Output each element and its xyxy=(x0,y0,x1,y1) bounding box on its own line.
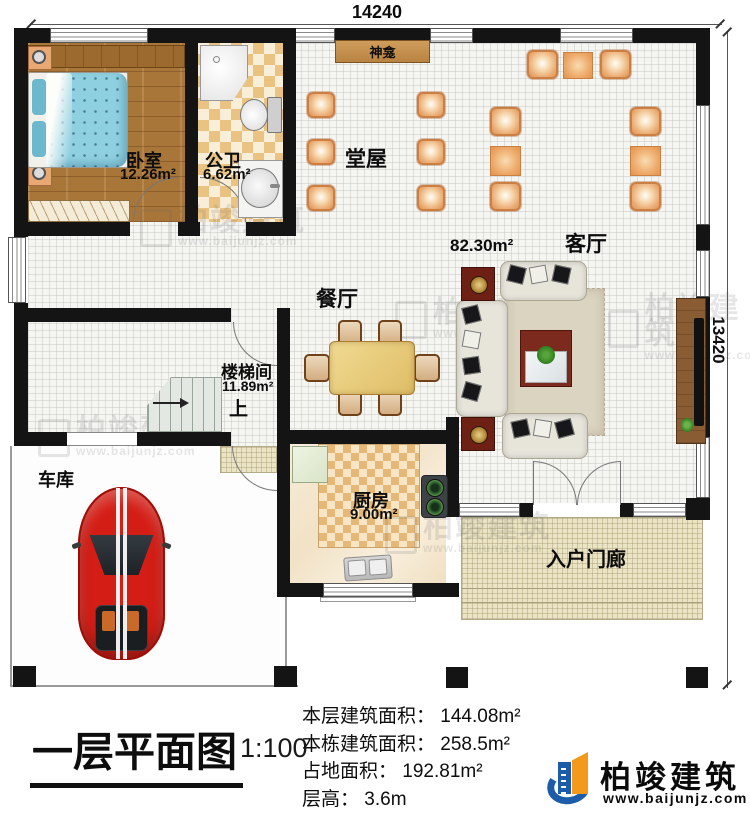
stairs-up-label: 上 xyxy=(229,394,248,421)
window-sill xyxy=(320,597,416,602)
title-block: 一层平面图 1:100 本层建筑面积： 144.08m² 本栋建筑面积： 258… xyxy=(0,700,750,817)
wall-opening xyxy=(67,432,137,446)
chair-icon xyxy=(600,50,631,79)
room-area-bathroom: 6.62m² xyxy=(203,166,251,183)
wall-segment xyxy=(686,498,710,520)
shrine-label: 神龛 xyxy=(369,42,395,61)
window-symbol xyxy=(696,105,710,225)
wall-segment xyxy=(14,303,28,446)
side-table-icon xyxy=(490,146,521,176)
dining-table xyxy=(329,341,415,395)
room-label-living: 客厅 xyxy=(565,228,607,258)
logo-building-blue-icon xyxy=(558,762,571,794)
stairs-direction-line xyxy=(153,402,181,404)
plan-info: 本层建筑面积： 144.08m² 本栋建筑面积： 258.5m² 占地面积： 1… xyxy=(302,703,521,813)
floorplan-canvas: 14240 13420 柏竣建筑 www.baijunjz.com 柏竣建筑 w… xyxy=(0,0,750,710)
car-engine-detail xyxy=(126,611,139,631)
window-symbol xyxy=(430,28,473,43)
info-line: 层高： 3.6m xyxy=(302,786,521,814)
lamp-icon xyxy=(32,166,46,180)
pillow xyxy=(31,78,47,116)
chair-icon xyxy=(307,139,335,165)
sofa-pillow xyxy=(529,265,549,285)
wall-segment xyxy=(14,28,28,237)
car xyxy=(78,487,165,660)
plant-icon xyxy=(537,346,555,364)
wall-segment xyxy=(696,28,710,105)
wall-segment xyxy=(14,222,130,236)
sofa-pillow xyxy=(462,330,482,350)
window-symbol xyxy=(633,503,686,517)
window-symbol xyxy=(8,237,26,303)
sink-basin-icon xyxy=(347,559,366,576)
wall-segment xyxy=(620,503,633,517)
room-area-stairwell: 11.89m² xyxy=(222,378,273,394)
dimension-line-top xyxy=(30,24,722,25)
plan-scale: 1:100 xyxy=(240,733,308,764)
wall-segment xyxy=(137,432,231,446)
lamp-icon xyxy=(32,50,46,64)
floorplan-page: { "plan": { "dim_top": "14240", "dim_rig… xyxy=(0,0,750,817)
door-leaf xyxy=(533,461,534,505)
chair-icon xyxy=(490,107,521,136)
porch-step-line xyxy=(461,588,703,589)
wall-segment xyxy=(413,583,459,597)
toilet-bowl xyxy=(240,99,268,131)
chair-icon xyxy=(630,182,661,211)
wardrobe xyxy=(28,200,130,222)
window-symbol xyxy=(560,28,633,43)
info-line: 本栋建筑面积： 258.5m² xyxy=(302,731,521,759)
door-leaf xyxy=(620,461,621,505)
shower-drain-icon xyxy=(213,56,220,63)
room-area-living: 82.30m² xyxy=(450,236,513,256)
side-table-icon xyxy=(630,146,661,176)
wall-segment xyxy=(277,446,290,597)
plan-title: 一层平面图 xyxy=(30,718,243,788)
wall-segment xyxy=(246,222,296,236)
burner-icon xyxy=(426,479,444,497)
chair-icon xyxy=(307,92,335,118)
wall-segment xyxy=(290,430,459,444)
wall-segment xyxy=(178,222,200,236)
tv-icon xyxy=(694,318,704,426)
logo-building-orange-icon xyxy=(572,752,588,794)
stairs-arrow-icon xyxy=(180,398,189,408)
room-area-bedroom: 12.26m² xyxy=(120,166,176,183)
window-symbol xyxy=(50,28,148,43)
garage-door-line xyxy=(10,685,298,687)
bed-sheet-fold xyxy=(46,73,72,167)
brand-website: www.baijunjz.com xyxy=(603,790,748,806)
chair-icon xyxy=(490,182,521,211)
room-label-dining: 餐厅 xyxy=(316,283,358,313)
sofa-pillow xyxy=(462,356,481,375)
sofa-pillow xyxy=(510,418,530,438)
window-symbol xyxy=(323,583,413,597)
wall-segment xyxy=(283,583,323,597)
toilet-tank xyxy=(267,97,282,133)
shrine-altar: 神龛 xyxy=(335,40,430,63)
column xyxy=(13,666,36,687)
room-label-hall: 堂屋 xyxy=(345,143,387,173)
wall-segment xyxy=(520,503,533,517)
dimension-line-right xyxy=(727,32,728,688)
info-line: 本层建筑面积： 144.08m² xyxy=(302,703,521,731)
chair-icon xyxy=(417,185,445,211)
brand-logo: 柏竣建筑 www.baijunjz.com xyxy=(545,750,745,812)
wall-segment xyxy=(277,308,290,446)
pillow xyxy=(31,120,47,158)
refrigerator xyxy=(292,446,328,483)
column xyxy=(446,667,468,688)
end-table xyxy=(461,267,495,301)
window-symbol xyxy=(696,437,710,498)
chair-icon xyxy=(417,139,445,165)
wall-segment xyxy=(14,308,231,322)
wall-segment xyxy=(14,432,67,446)
car-engine-detail xyxy=(102,611,115,631)
column xyxy=(686,667,708,688)
chair-icon xyxy=(307,185,335,211)
garage-wall-line xyxy=(10,446,12,687)
sink-basin-icon xyxy=(368,558,387,575)
chair-icon xyxy=(527,50,558,79)
dining-chair-icon xyxy=(304,354,330,382)
plant-icon xyxy=(681,418,693,432)
room-area-kitchen: 9.00m² xyxy=(350,506,398,523)
window-symbol xyxy=(459,503,520,517)
side-table-icon xyxy=(563,52,593,79)
car-stripe xyxy=(116,488,120,659)
dining-chair-icon xyxy=(414,354,440,382)
window-symbol xyxy=(696,250,710,297)
info-line: 占地面积： 192.81m² xyxy=(302,758,521,786)
room-label-porch: 入户门廊 xyxy=(546,543,626,572)
wall-segment xyxy=(696,225,710,250)
dimension-top: 14240 xyxy=(352,2,402,23)
chair-icon xyxy=(630,107,661,136)
faucet-icon xyxy=(270,184,280,188)
end-table xyxy=(461,417,495,451)
chair-icon xyxy=(417,92,445,118)
table-medallion-icon xyxy=(470,426,488,444)
burner-icon xyxy=(426,498,444,516)
sofa-pillow xyxy=(551,264,571,284)
room-label-garage: 车库 xyxy=(38,466,74,492)
wall-segment xyxy=(283,28,296,222)
sofa-pillow xyxy=(533,419,552,438)
table-medallion-icon xyxy=(470,276,488,294)
dimension-right: 13420 xyxy=(708,310,728,370)
column xyxy=(274,666,297,687)
wall-segment xyxy=(473,28,560,43)
wall-segment xyxy=(148,28,283,43)
wall-segment xyxy=(185,28,198,222)
car-stripe xyxy=(123,488,127,659)
porch-step-line xyxy=(461,602,703,603)
